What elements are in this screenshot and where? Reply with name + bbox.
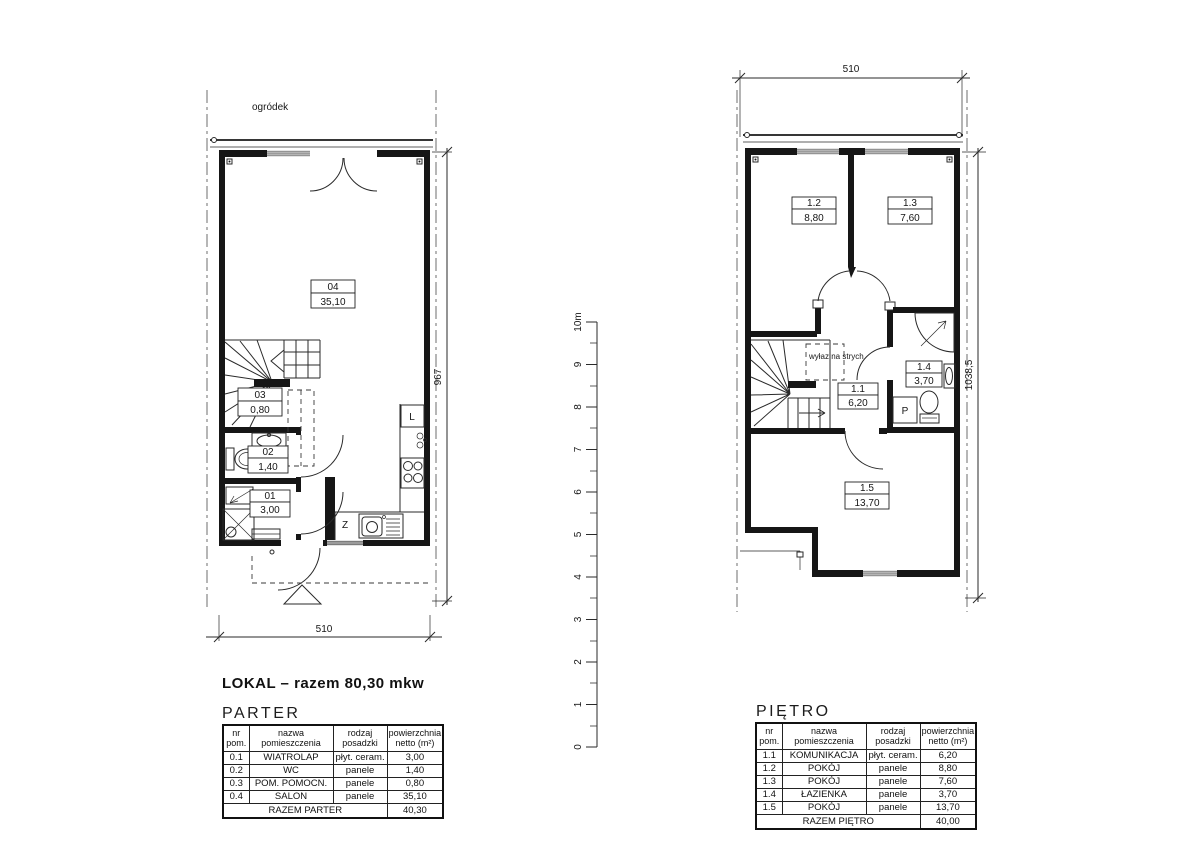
room-number: 01 bbox=[264, 491, 276, 502]
room-number: 1.1 bbox=[851, 384, 865, 395]
pietro-plan: 510 bbox=[732, 64, 986, 612]
stair-rail bbox=[788, 381, 816, 388]
col-header: powierzchnia netto (m²) bbox=[920, 723, 976, 749]
attic-hatch-label: wyłaz na strych bbox=[808, 352, 864, 361]
scale-bar: 0 1 2 3 4 5 6 7 8 9 10m bbox=[573, 312, 597, 750]
scale-tick-label: 9 bbox=[573, 361, 584, 367]
table-row: 0.4 SALON panele 35,10 bbox=[223, 790, 443, 803]
room-number: 1.3 bbox=[903, 198, 917, 209]
pietro-doors bbox=[818, 271, 890, 469]
table-row: 1.4 ŁAZIENKA panele 3,70 bbox=[756, 788, 976, 801]
attic-hatch-dashed bbox=[806, 344, 844, 380]
pietro-heading: PIĘTRO bbox=[756, 703, 831, 721]
window-icon bbox=[267, 151, 310, 156]
table-header-row: nr pom. nazwa pomieszczenia rodzaj posad… bbox=[756, 723, 976, 749]
room-label-wc: 02 1,40 bbox=[248, 446, 288, 473]
pietro-dim-right: 1038,5 bbox=[962, 147, 986, 603]
col-header: nazwa pomieszczenia bbox=[782, 723, 866, 749]
wardrobe-icon bbox=[226, 487, 253, 504]
stair-direction-arrow-icon bbox=[799, 409, 825, 417]
col-header: nr pom. bbox=[223, 725, 249, 751]
scale-tick-label: 8 bbox=[573, 404, 584, 410]
col-header: nazwa pomieszczenia bbox=[249, 725, 333, 751]
table-row: 1.1 KOMUNIKACJA płyt. ceram. 6,20 bbox=[756, 749, 976, 762]
room-area: 13,70 bbox=[854, 498, 879, 509]
table-header-row: nr pom. nazwa pomieszczenia rodzaj posad… bbox=[223, 725, 443, 751]
pietro-exterior-step bbox=[740, 551, 803, 570]
toilet-icon bbox=[920, 391, 939, 423]
entry-hall-door-icon bbox=[301, 492, 343, 534]
parter-table: nr pom. nazwa pomieszczenia rodzaj posad… bbox=[222, 724, 444, 819]
stove-icon bbox=[401, 458, 424, 488]
window-icon bbox=[865, 149, 908, 154]
parter-site-boundary bbox=[207, 90, 436, 610]
room-area: 8,80 bbox=[804, 213, 824, 224]
room-number: 04 bbox=[327, 282, 339, 293]
bench-icon bbox=[252, 529, 280, 539]
room-area: 3,00 bbox=[260, 505, 280, 516]
parter-windows bbox=[267, 151, 363, 545]
scale-tick-label: 5 bbox=[573, 531, 584, 537]
room-number: 02 bbox=[262, 447, 274, 458]
fridge-letter: L bbox=[409, 412, 415, 423]
lokal-summary: LOKAL – razem 80,30 mkw bbox=[222, 675, 424, 692]
col-header: rodzaj posadzki bbox=[866, 723, 920, 749]
entrance-door-icon bbox=[278, 548, 320, 590]
parter-fence bbox=[210, 138, 433, 148]
room-area: 3,70 bbox=[914, 376, 934, 387]
room-label-pokoj13: 1.3 7,60 bbox=[888, 197, 932, 224]
room-label-wiatrolap: 01 3,00 bbox=[250, 490, 290, 517]
room12-door-icon bbox=[818, 271, 849, 301]
scale-tick-label: 2 bbox=[573, 659, 584, 665]
dim-width-value: 510 bbox=[843, 64, 860, 75]
bath-sink-icon bbox=[944, 364, 955, 388]
dim-height-value: 1038,5 bbox=[964, 359, 975, 390]
plans-drawing: ogródek bbox=[0, 0, 1198, 847]
room-label-komunikacja: 1.1 6,20 bbox=[838, 383, 878, 409]
scale-tick-label: 10m bbox=[573, 312, 584, 331]
col-header: powierzchnia netto (m²) bbox=[387, 725, 443, 751]
room-number: 03 bbox=[254, 390, 266, 401]
kitchen-counter bbox=[335, 404, 427, 540]
table-row: 0.3 POM. POMOCN. panele 0,80 bbox=[223, 777, 443, 790]
room-number: 1.4 bbox=[917, 362, 931, 373]
room-area: 6,20 bbox=[848, 398, 868, 409]
table-row: 0.1 WIATROLAP płyt. ceram. 3,00 bbox=[223, 751, 443, 764]
shower-icon bbox=[915, 313, 954, 352]
room-label-pom-pomocn: 03 0,80 bbox=[238, 388, 282, 416]
parter-entry bbox=[252, 556, 432, 604]
table-row: 0.2 WC panele 1,40 bbox=[223, 764, 443, 777]
table-row: 1.5 POKÓJ panele 13,70 bbox=[756, 801, 976, 814]
dim-width-value: 510 bbox=[316, 624, 333, 635]
col-header: rodzaj posadzki bbox=[333, 725, 387, 751]
parter-heading: PARTER bbox=[222, 705, 300, 723]
table-row: 1.2 POKÓJ panele 8,80 bbox=[756, 762, 976, 775]
entrance-arrow-icon bbox=[284, 585, 321, 604]
fence-post-icon bbox=[212, 138, 217, 143]
col-header: nr pom. bbox=[756, 723, 782, 749]
shaft-icon bbox=[223, 509, 254, 540]
scale-tick-label: 1 bbox=[573, 701, 584, 707]
room-label-salon: 04 35,10 bbox=[311, 280, 355, 308]
room-area: 0,80 bbox=[250, 405, 270, 416]
room-area: 1,40 bbox=[258, 462, 278, 473]
stair-break-mark-icon bbox=[271, 350, 284, 372]
garden-label: ogródek bbox=[252, 102, 289, 113]
pietro-room-labels: wyłaz na strych 1.2 8,80 1.3 7,60 1.1 6,… bbox=[792, 197, 942, 509]
window-icon bbox=[327, 541, 363, 545]
washer-letter: P bbox=[902, 406, 909, 417]
stair-rail bbox=[254, 379, 290, 387]
pietro-dim-top: 510 bbox=[732, 64, 970, 137]
parter-corner-marks bbox=[227, 159, 422, 164]
room-area: 7,60 bbox=[900, 213, 920, 224]
french-door-right-icon bbox=[344, 158, 377, 191]
room-area: 35,10 bbox=[320, 297, 345, 308]
scale-tick-label: 0 bbox=[573, 744, 584, 750]
room-label-pokoj15: 1.5 13,70 bbox=[845, 482, 889, 509]
table-row: 1.3 POKÓJ panele 7,60 bbox=[756, 775, 976, 788]
window-icon bbox=[863, 571, 897, 576]
scale-tick-label: 7 bbox=[573, 446, 584, 452]
table-total-row: RAZEM PARTER 40,30 bbox=[223, 803, 443, 818]
room-number: 1.2 bbox=[807, 198, 821, 209]
room13-door-icon bbox=[857, 271, 890, 301]
floorplan-sheet: ogródek bbox=[0, 0, 1198, 847]
sink-letter: Z bbox=[342, 520, 348, 531]
table-total-row: RAZEM PIĘTRO 40,00 bbox=[756, 814, 976, 829]
pietro-fence bbox=[743, 133, 963, 143]
scale-tick-label: 6 bbox=[573, 489, 584, 495]
dim-height-value: 967 bbox=[433, 368, 444, 385]
room15-door-icon bbox=[845, 431, 883, 469]
kitchen-sink-icon bbox=[359, 514, 403, 538]
french-door-left-icon bbox=[310, 158, 343, 191]
scale-tick-label: 3 bbox=[573, 616, 584, 622]
pietro-table: nr pom. nazwa pomieszczenia rodzaj posad… bbox=[755, 722, 977, 830]
wc-door-icon bbox=[301, 435, 343, 477]
window-icon bbox=[797, 149, 839, 154]
room-label-pokoj12: 1.2 8,80 bbox=[792, 197, 836, 224]
scale-tick-label: 4 bbox=[573, 574, 584, 580]
room-label-lazienka: 1.4 3,70 bbox=[906, 361, 942, 387]
room-number: 1.5 bbox=[860, 483, 874, 494]
parter-plan: ogródek bbox=[206, 90, 452, 642]
parter-doors bbox=[270, 158, 377, 590]
